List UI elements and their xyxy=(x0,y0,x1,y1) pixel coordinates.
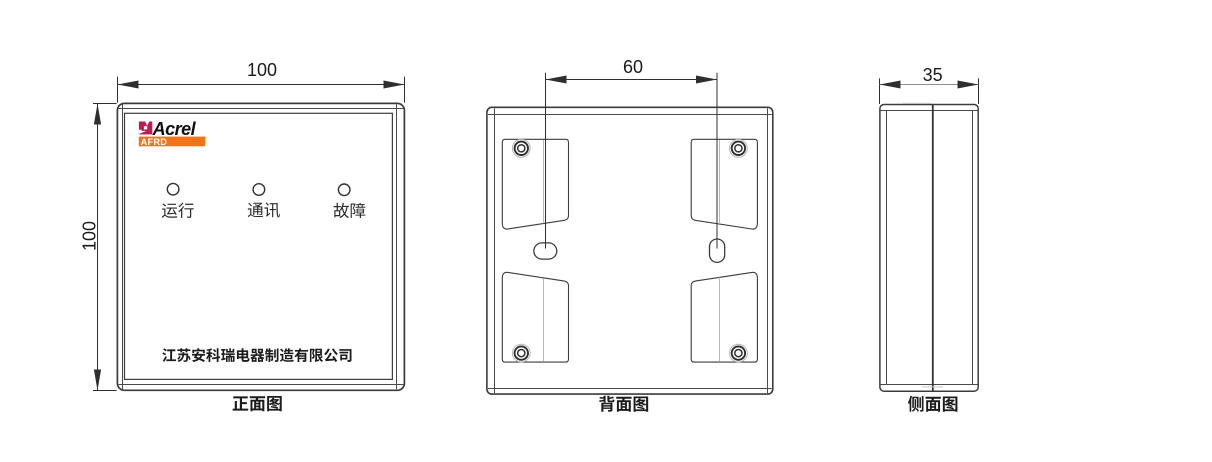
svg-text:100: 100 xyxy=(80,221,100,251)
svg-text:AFRD: AFRD xyxy=(141,137,168,147)
svg-text:60: 60 xyxy=(623,57,643,77)
svg-text:35: 35 xyxy=(923,65,943,85)
svg-text:100: 100 xyxy=(247,60,277,80)
